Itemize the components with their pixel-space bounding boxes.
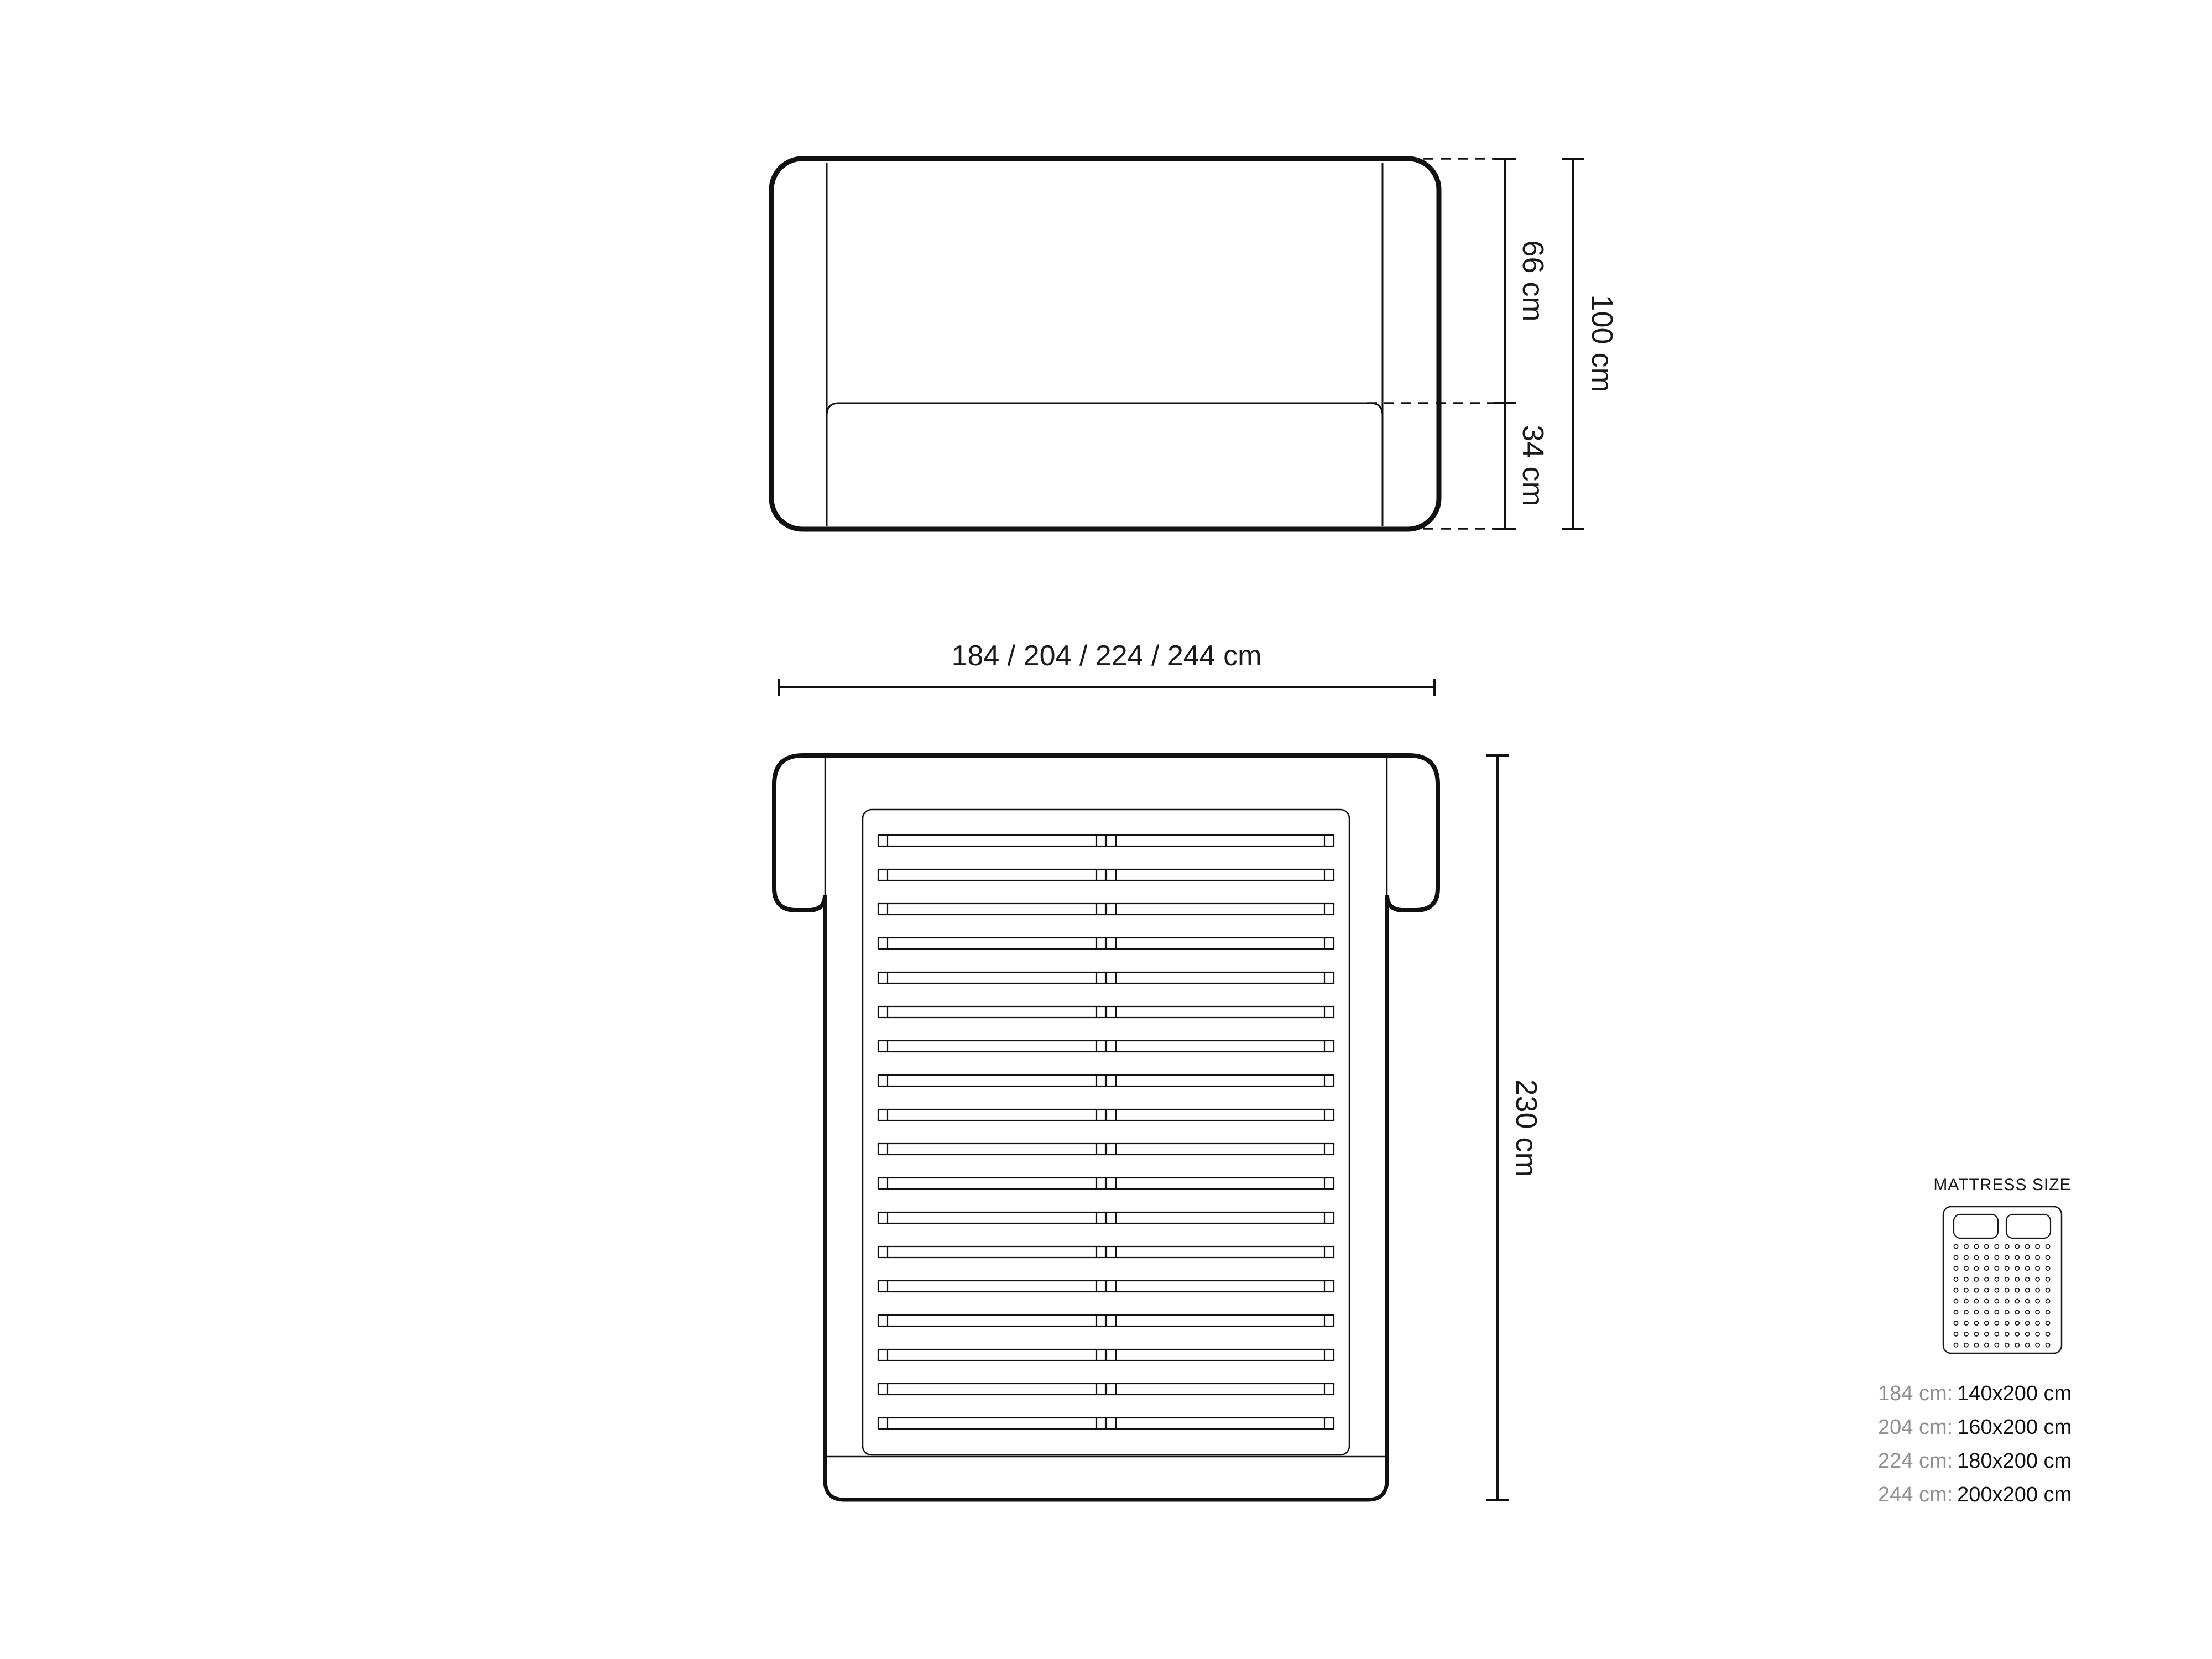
mattress-dot [2036, 1244, 2039, 1248]
mattress-dot [2015, 1288, 2019, 1292]
mattress-dot [1974, 1299, 1978, 1303]
slat-right-half [1107, 1418, 1334, 1429]
slat-left-half [878, 1006, 1105, 1018]
mattress-dot [1985, 1343, 1989, 1347]
mattress-dot [2046, 1310, 2049, 1314]
mattress-dot [1985, 1277, 1989, 1281]
mattress-dot [1954, 1332, 1958, 1336]
mattress-dot [1964, 1277, 1968, 1281]
plan-headboard-outline [774, 755, 1438, 910]
mattress-dot [1985, 1299, 1989, 1303]
mattress-dot [2046, 1332, 2049, 1336]
mattress-dot [2015, 1299, 2019, 1303]
slat-right-half [1107, 938, 1334, 949]
mattress-dot [1985, 1310, 1989, 1314]
mattress-dot [2015, 1244, 2019, 1248]
slat-row [878, 1349, 1334, 1360]
mattress-dot [1995, 1310, 1999, 1314]
mattress-dot [1995, 1277, 1999, 1281]
slat-left-half [878, 1075, 1105, 1086]
slat-left-half [878, 1349, 1105, 1360]
mattress-dot [1995, 1288, 1999, 1292]
mattress-dot [1954, 1299, 1958, 1303]
slat-right-half [1107, 1109, 1334, 1120]
slat-right-half [1107, 869, 1334, 880]
mattress-icon-pillow-left [1954, 1214, 1998, 1238]
mattress-dot [2046, 1244, 2049, 1248]
mattress-dot [2036, 1343, 2039, 1347]
mattress-dot [2036, 1321, 2039, 1325]
slat-left-half [878, 904, 1105, 915]
slat-right-half [1107, 1384, 1334, 1395]
slat-right-half [1107, 1349, 1334, 1360]
mattress-icon-outline [1943, 1207, 2062, 1353]
slat-left-half [878, 869, 1105, 880]
legend-row: 224 cm:180x200 cm [1878, 1448, 2072, 1481]
slat-right-half [1107, 1281, 1334, 1292]
slat-row [878, 1418, 1334, 1429]
slat-row [878, 1006, 1334, 1018]
front-dim-line-split [1494, 159, 1516, 529]
slat-row [878, 1212, 1334, 1223]
mattress-dot [1964, 1266, 1968, 1270]
slat-row [878, 1109, 1334, 1120]
slat-right-half [1107, 1178, 1334, 1189]
mattress-dot [1974, 1255, 1978, 1259]
slat-row [878, 938, 1334, 949]
mattress-dot [2005, 1277, 2009, 1281]
legend-row-mattress: 160x200 cm [1957, 1416, 2072, 1439]
mattress-dot [2015, 1277, 2019, 1281]
mattress-dot [2036, 1277, 2039, 1281]
top-view [774, 755, 1509, 1500]
front-upper-height-label: 66 cm [1516, 240, 1550, 321]
mattress-dot [1974, 1343, 1978, 1347]
slat-row [878, 1315, 1334, 1326]
slat-left-half [878, 1418, 1105, 1429]
mattress-dot [1954, 1321, 1958, 1325]
front-extension-lines [1367, 159, 1505, 529]
mattress-dot [2005, 1343, 2009, 1347]
mattress-dot [2026, 1310, 2030, 1314]
slat-right-half [1107, 972, 1334, 983]
mattress-dot [1985, 1321, 1989, 1325]
mattress-dot [2005, 1255, 2009, 1259]
mattress-dot [2005, 1299, 2009, 1303]
legend-row: 204 cm:160x200 cm [1878, 1414, 2072, 1448]
legend-row: 244 cm:200x200 cm [1878, 1481, 2072, 1515]
mattress-dot [2015, 1332, 2019, 1336]
mattress-dot [2046, 1321, 2049, 1325]
mattress-dot [2036, 1255, 2039, 1259]
mattress-dot [1974, 1244, 1978, 1248]
mattress-dot [2046, 1277, 2049, 1281]
bed-dimension-diagram: 66 cm 34 cm 100 cm 184 / 204 / 224 / 244… [0, 0, 2212, 1659]
mattress-dot [1964, 1343, 1968, 1347]
mattress-dot [2005, 1266, 2009, 1270]
mattress-dot [1995, 1321, 1999, 1325]
mattress-dot [2015, 1266, 2019, 1270]
mattress-dot [2005, 1244, 2009, 1248]
mattress-dot [2046, 1288, 2049, 1292]
mattress-dot [1974, 1288, 1978, 1292]
mattress-dot [2036, 1288, 2039, 1292]
slat-left-half [878, 938, 1105, 949]
slat-left-half [878, 1144, 1105, 1155]
slat-row [878, 1384, 1334, 1395]
slat-row [878, 1075, 1334, 1086]
mattress-dot [1985, 1332, 1989, 1336]
mattress-dot [1974, 1310, 1978, 1314]
slat-left-half [878, 1246, 1105, 1258]
slat-left-half [878, 1212, 1105, 1223]
mattress-dot [2036, 1266, 2039, 1270]
mattress-dot [2026, 1266, 2030, 1270]
mattress-dot [1964, 1321, 1968, 1325]
mattress-dot [2026, 1321, 2030, 1325]
mattress-dot [2036, 1310, 2039, 1314]
slat-left-half [878, 1178, 1105, 1189]
slat-right-half [1107, 1144, 1334, 1155]
slat-row [878, 869, 1334, 880]
mattress-dot [2015, 1321, 2019, 1325]
mattress-dot [1954, 1266, 1958, 1270]
slat-row [878, 1041, 1334, 1052]
mattress-dot [1954, 1244, 1958, 1248]
mattress-dot [2026, 1299, 2030, 1303]
slat-right-half [1107, 1212, 1334, 1223]
mattress-dot [1964, 1310, 1968, 1314]
slat-left-half [878, 972, 1105, 983]
mattress-dot [2015, 1255, 2019, 1259]
mattress-dot [1995, 1266, 1999, 1270]
mattress-dot [1985, 1288, 1989, 1292]
front-outline [771, 159, 1439, 529]
legend-title: MATTRESS SIZE [1933, 1176, 2071, 1194]
slat-row [878, 904, 1334, 915]
mattress-dot [1974, 1321, 1978, 1325]
mattress-dot [1985, 1266, 1989, 1270]
legend-row-width: 224 cm: [1878, 1449, 1953, 1473]
mattress-dot [1964, 1255, 1968, 1259]
mattress-dot [1995, 1244, 1999, 1248]
mattress-dot [1954, 1343, 1958, 1347]
mattress-dot [2026, 1277, 2030, 1281]
front-total-height-label: 100 cm [1585, 294, 1619, 392]
slat-left-half [878, 1109, 1105, 1120]
mattress-dot [1954, 1310, 1958, 1314]
slats-layer [878, 835, 1334, 1429]
legend-rows: 184 cm:140x200 cm 204 cm:160x200 cm 224 … [1878, 1380, 2072, 1515]
slat-row [878, 972, 1334, 983]
mattress-icon-pillow-right [2006, 1214, 2051, 1238]
slat-right-half [1107, 1075, 1334, 1086]
mattress-dot [1974, 1266, 1978, 1270]
mattress-dot [2005, 1310, 2009, 1314]
mattress-dot [1954, 1255, 1958, 1259]
mattress-dot [1995, 1299, 1999, 1303]
mattress-dot [2026, 1288, 2030, 1292]
legend-row-mattress: 200x200 cm [1957, 1483, 2072, 1506]
slat-row [878, 1281, 1334, 1292]
mattress-dot [1964, 1288, 1968, 1292]
slat-right-half [1107, 1006, 1334, 1018]
legend-row-width: 244 cm: [1878, 1483, 1953, 1506]
mattress-dot [2046, 1299, 2049, 1303]
front-dim-line-total [1562, 159, 1584, 529]
mattress-dot [2005, 1321, 2009, 1325]
mattress-dot [1964, 1244, 1968, 1248]
mattress-dot [2046, 1255, 2049, 1259]
mattress-dot [1995, 1255, 1999, 1259]
legend-row: 184 cm:140x200 cm [1878, 1380, 2072, 1414]
slat-row [878, 1246, 1334, 1258]
front-view [771, 159, 1584, 696]
mattress-dot [2026, 1332, 2030, 1336]
mattress-dot [2026, 1244, 2030, 1248]
mattress-dot [1954, 1277, 1958, 1281]
mattress-dot [2036, 1332, 2039, 1336]
plan-depth-label: 230 cm [1509, 1079, 1543, 1177]
mattress-dot [2046, 1343, 2049, 1347]
mattress-dot [2036, 1299, 2039, 1303]
mattress-icon-dots [1954, 1244, 2049, 1347]
mattress-icon [1943, 1207, 2062, 1353]
plan-frame-outline [825, 896, 1387, 1500]
mattress-dot [2005, 1288, 2009, 1292]
slat-row [878, 835, 1334, 846]
front-base-outline [827, 403, 1383, 526]
slat-right-half [1107, 1315, 1334, 1326]
legend-row-mattress: 140x200 cm [1957, 1382, 2072, 1405]
mattress-dot [1964, 1332, 1968, 1336]
mattress-dot [1974, 1332, 1978, 1336]
mattress-dot [2026, 1343, 2030, 1347]
slat-row [878, 1178, 1334, 1189]
slat-left-half [878, 1384, 1105, 1395]
slat-right-half [1107, 904, 1334, 915]
mattress-dot [2026, 1255, 2030, 1259]
front-width-label: 184 / 204 / 224 / 244 cm [952, 639, 1262, 672]
front-width-dim-line [779, 679, 1434, 696]
mattress-dot [1985, 1255, 1989, 1259]
mattress-dot [2015, 1343, 2019, 1347]
slat-left-half [878, 835, 1105, 846]
mattress-dot [2015, 1310, 2019, 1314]
slat-left-half [878, 1281, 1105, 1292]
slat-row [878, 1144, 1334, 1155]
slat-right-half [1107, 1246, 1334, 1258]
mattress-dot [1964, 1299, 1968, 1303]
mattress-dot [1995, 1332, 1999, 1336]
slat-left-half [878, 1315, 1105, 1326]
mattress-dot [1954, 1288, 1958, 1292]
mattress-dot [1995, 1343, 1999, 1347]
legend-row-width: 184 cm: [1878, 1382, 1953, 1405]
slat-right-half [1107, 835, 1334, 846]
mattress-dot [2005, 1332, 2009, 1336]
mattress-dot [1974, 1277, 1978, 1281]
mattress-dot [1985, 1244, 1989, 1248]
front-lower-height-label: 34 cm [1516, 425, 1550, 506]
legend-row-width: 204 cm: [1878, 1416, 1953, 1439]
slat-right-half [1107, 1041, 1334, 1052]
plan-depth-dim-line [1486, 755, 1509, 1500]
mattress-dot [2046, 1266, 2049, 1270]
legend-row-mattress: 180x200 cm [1957, 1449, 2072, 1473]
slat-left-half [878, 1041, 1105, 1052]
